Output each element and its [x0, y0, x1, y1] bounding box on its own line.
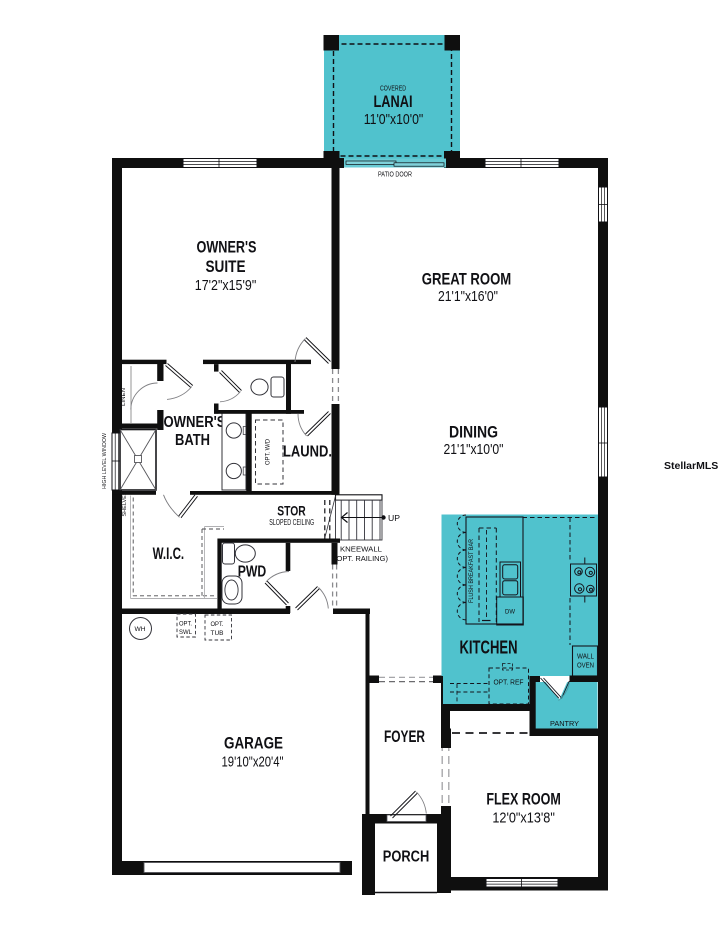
svg-text:FLEX ROOM: FLEX ROOM	[486, 790, 561, 809]
svg-text:W.I.C.: W.I.C.	[153, 545, 185, 563]
svg-text:TUB: TUB	[211, 630, 224, 637]
svg-text:LAUND.: LAUND.	[283, 444, 332, 461]
svg-text:19'10"x20'4": 19'10"x20'4"	[222, 754, 284, 771]
svg-text:12'0"x13'8": 12'0"x13'8"	[492, 810, 555, 827]
svg-text:DW: DW	[505, 610, 515, 616]
svg-text:LINEN: LINEN	[121, 388, 127, 406]
svg-text:PWD: PWD	[238, 563, 267, 580]
svg-text:21'1"x10'0": 21'1"x10'0"	[444, 441, 504, 458]
svg-text:OPT. REF: OPT. REF	[494, 678, 524, 687]
svg-text:PANTRY: PANTRY	[550, 719, 579, 728]
svg-text:OPT.: OPT.	[179, 621, 192, 628]
svg-text:OPT.: OPT.	[211, 621, 224, 628]
svg-text:PORCH: PORCH	[383, 849, 430, 866]
svg-text:OWNER'S: OWNER'S	[164, 414, 226, 431]
svg-text:STOR: STOR	[277, 503, 306, 519]
svg-text:OPT. W/D: OPT. W/D	[265, 438, 272, 465]
svg-text:OWNER'S: OWNER'S	[197, 237, 257, 256]
svg-text:SWL: SWL	[179, 629, 193, 636]
svg-text:WALL: WALL	[577, 654, 594, 661]
svg-text:OVEN: OVEN	[577, 663, 594, 670]
svg-text:DINING: DINING	[449, 423, 498, 442]
svg-text:GREAT ROOM: GREAT ROOM	[422, 270, 512, 289]
svg-text:21'1"x16'0": 21'1"x16'0"	[438, 288, 498, 305]
svg-text:(OPT. RAILING): (OPT. RAILING)	[334, 554, 388, 563]
svg-text:KNEEWALL: KNEEWALL	[340, 545, 382, 554]
svg-text:BATH: BATH	[175, 432, 210, 449]
svg-text:GARAGE: GARAGE	[224, 734, 283, 753]
svg-text:11'0"x10'0": 11'0"x10'0"	[364, 111, 424, 128]
svg-text:SHELVES: SHELVES	[122, 491, 128, 516]
svg-text:WH: WH	[135, 626, 146, 633]
svg-text:StellarMLS: StellarMLS	[664, 460, 718, 472]
svg-text:SLOPED CEILING: SLOPED CEILING	[269, 518, 314, 527]
svg-text:HIGH LEVEL WINDOW: HIGH LEVEL WINDOW	[102, 433, 108, 489]
svg-text:UP: UP	[388, 514, 400, 523]
svg-text:FOYER: FOYER	[384, 728, 425, 746]
svg-text:PATIO DOOR: PATIO DOOR	[378, 172, 412, 179]
svg-text:17'2"x15'9": 17'2"x15'9"	[195, 277, 257, 294]
svg-text:FLUSH BREAKFAST BAR: FLUSH BREAKFAST BAR	[468, 539, 475, 603]
svg-text:KITCHEN: KITCHEN	[460, 636, 518, 657]
svg-text:SUITE: SUITE	[206, 257, 246, 276]
svg-text:LANAI: LANAI	[374, 92, 413, 111]
